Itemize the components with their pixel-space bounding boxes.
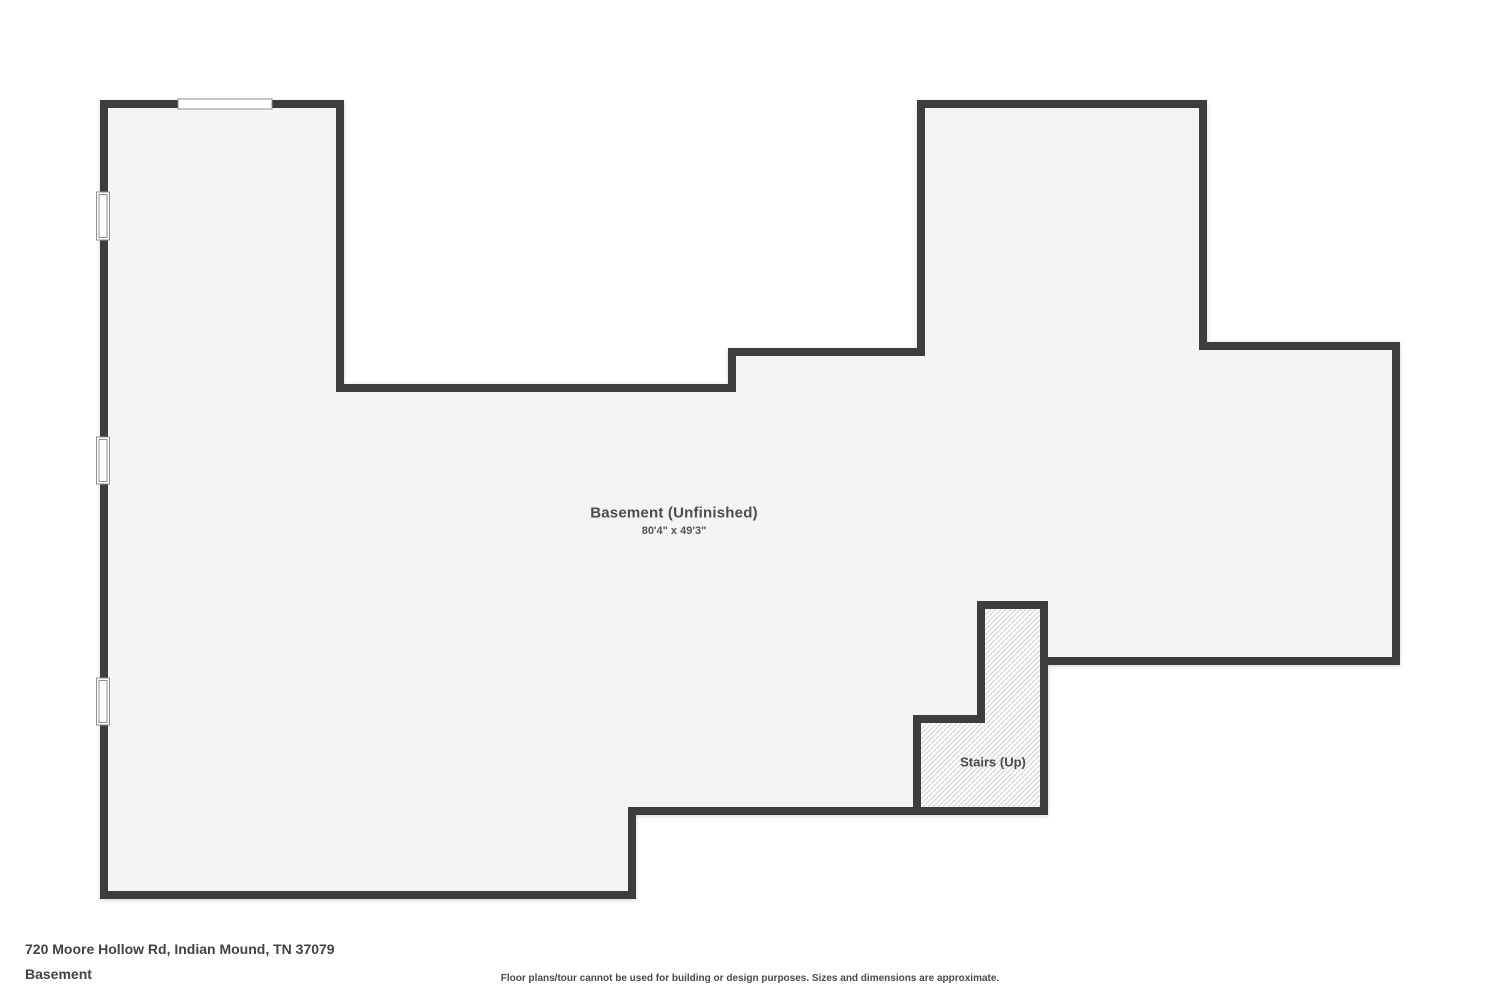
wall-opening-icon [178, 99, 272, 109]
room-label-title: Basement (Unfinished) [590, 505, 758, 522]
window-icon [97, 192, 110, 240]
basement-floor-outline [104, 104, 1396, 895]
room-label-dimensions: 80'4" x 49'3" [642, 525, 707, 537]
property-address: 720 Moore Hollow Rd, Indian Mound, TN 37… [25, 941, 335, 957]
floorplan-page: Basement (Unfinished) 80'4" x 49'3" Stai… [0, 0, 1500, 999]
stairs-label: Stairs (Up) [960, 755, 1026, 770]
floorplan-svg [0, 0, 1500, 999]
window-icon [97, 678, 110, 725]
disclaimer-text: Floor plans/tour cannot be used for buil… [0, 973, 1500, 984]
window-icon [97, 437, 110, 484]
